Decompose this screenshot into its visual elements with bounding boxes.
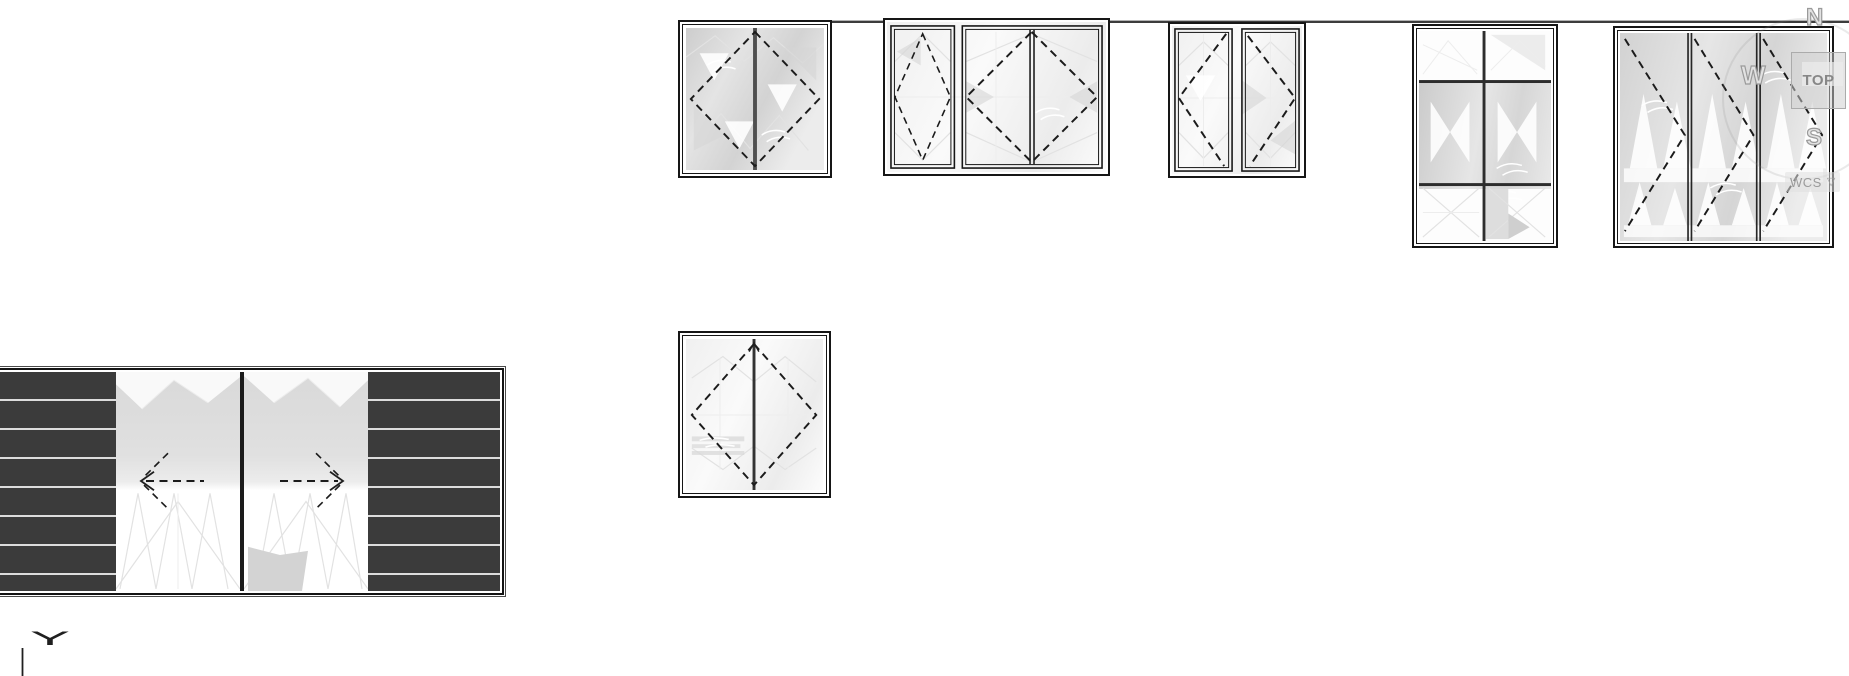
glass-slider-right-drawing xyxy=(244,372,368,591)
glass-slider-right xyxy=(244,372,368,591)
sash-frames xyxy=(1175,29,1299,171)
glass-slider-left-drawing xyxy=(116,372,240,591)
viewcube-top-face[interactable]: TOP xyxy=(1791,52,1846,109)
viewcube-north-label[interactable]: N xyxy=(1806,6,1823,30)
louver-panel-right xyxy=(368,372,500,591)
chevron-down-icon: ▽ xyxy=(1827,177,1835,188)
center-mullion xyxy=(753,339,756,490)
center-mullion xyxy=(753,28,757,170)
wcs-label: WCS xyxy=(1790,175,1822,190)
window-elevation-4[interactable] xyxy=(1412,24,1558,248)
window-4-glass xyxy=(1419,31,1551,241)
plan-body xyxy=(0,372,500,591)
ucs-axis-drawing: Y xyxy=(0,612,100,676)
viewcube-south-label[interactable]: S xyxy=(1806,126,1822,150)
window-6-glass xyxy=(686,339,823,490)
window-6-drawing xyxy=(686,339,823,490)
glass-slider-left xyxy=(116,372,240,591)
glass-reflection xyxy=(895,32,1097,162)
plan-inner-frame xyxy=(0,368,504,595)
window-3-drawing xyxy=(1172,26,1302,174)
window-elevation-6[interactable] xyxy=(678,331,831,498)
viewcube-west-label[interactable]: W xyxy=(1741,62,1766,88)
window-4-drawing xyxy=(1419,31,1551,241)
y-axis-label: Y xyxy=(30,628,70,650)
drawing-canvas: N W S TOP WCS ▽ Y xyxy=(0,0,1849,676)
glass-reflection xyxy=(1179,34,1295,166)
window-3-glass xyxy=(1172,26,1302,174)
wcs-dropdown[interactable]: WCS ▽ xyxy=(1785,172,1840,192)
window-elevation-2[interactable] xyxy=(883,18,1110,176)
glass-reflection xyxy=(244,372,368,591)
window-elevation-3[interactable] xyxy=(1168,22,1306,178)
viewcube-top-label: TOP xyxy=(1792,72,1845,89)
sliding-door-plan[interactable] xyxy=(0,366,506,597)
ucs-axis-indicator[interactable]: Y xyxy=(0,612,100,676)
window-elevation-1[interactable] xyxy=(678,20,832,178)
opening-symbol-chevrons xyxy=(1179,34,1295,166)
window-2-drawing xyxy=(887,22,1106,172)
window-1-glass xyxy=(686,28,824,170)
louver-panel-left xyxy=(0,372,116,591)
window-1-drawing xyxy=(686,28,824,170)
window-2-glass xyxy=(887,22,1106,172)
